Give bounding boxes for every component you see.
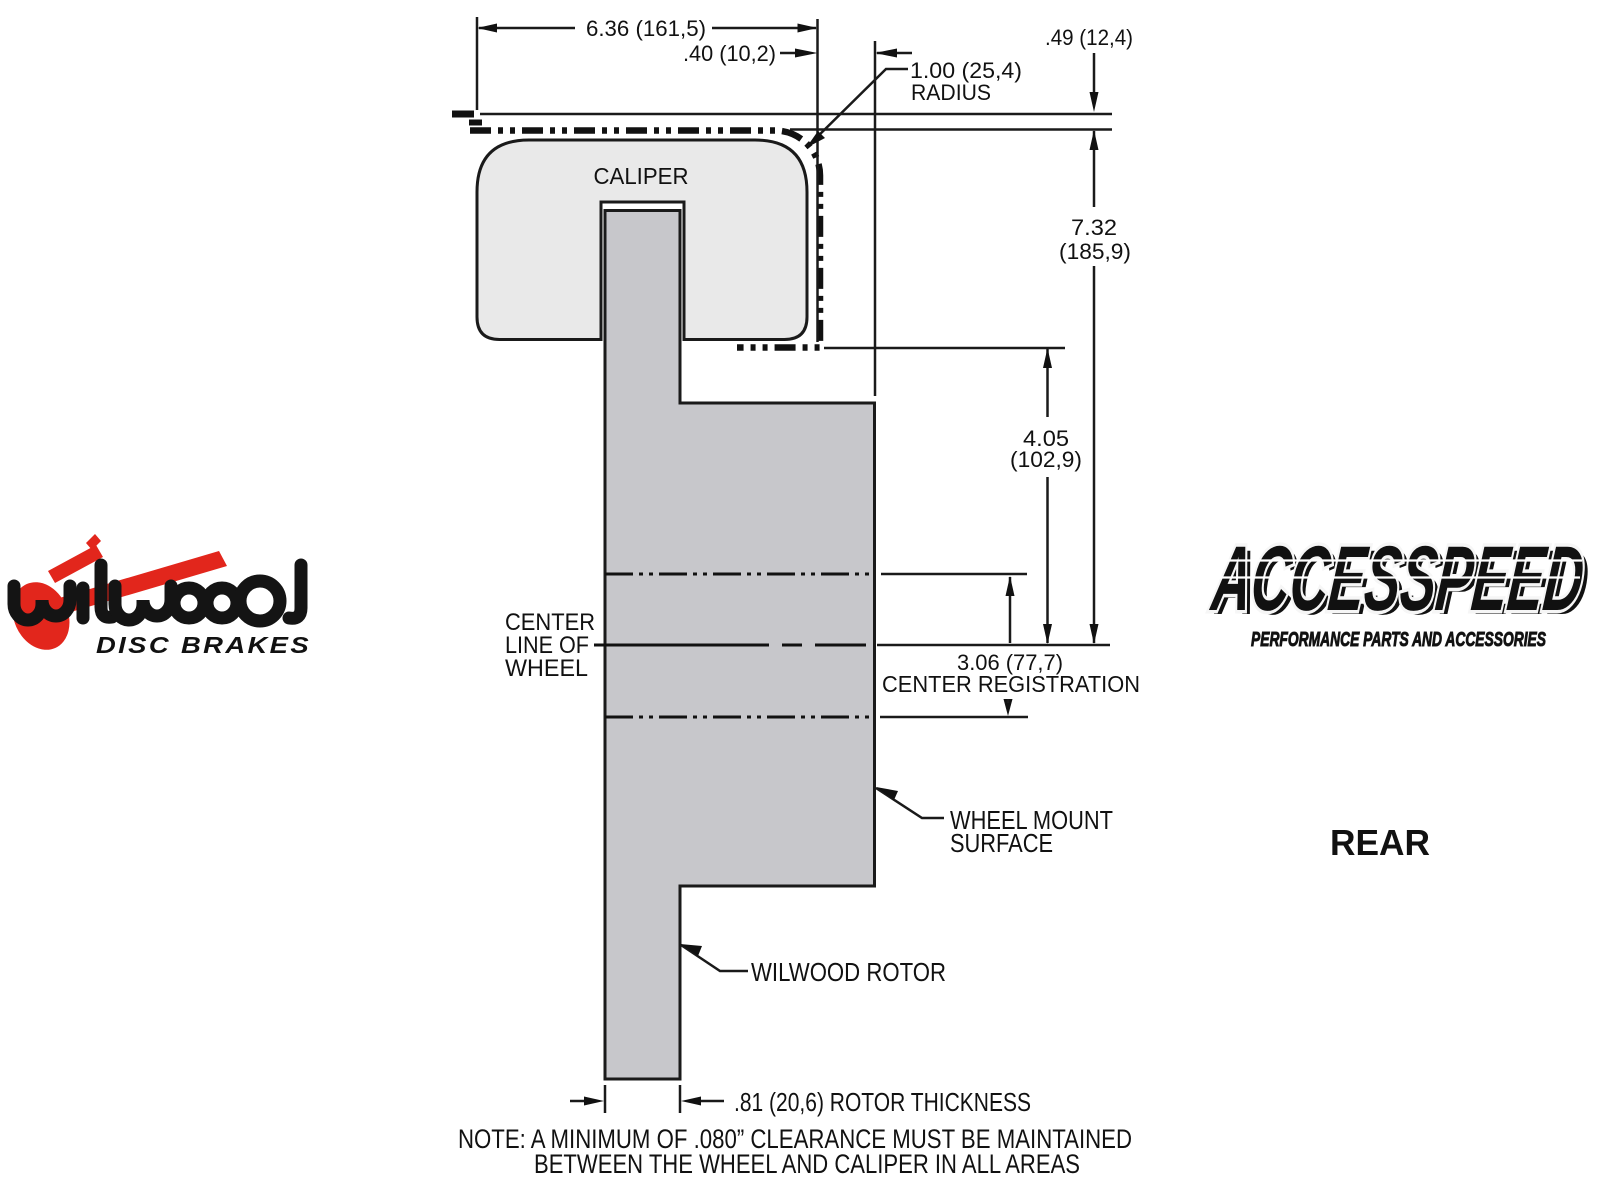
svg-text:WILWOOD ROTOR: WILWOOD ROTOR [751,957,946,987]
svg-text:CALIPER: CALIPER [594,163,689,189]
svg-text:6.36 (161,5): 6.36 (161,5) [586,16,706,41]
svg-text:7.32: 7.32 [1071,215,1117,240]
svg-text:.40 (10,2): .40 (10,2) [683,41,776,66]
svg-text:REAR: REAR [1330,822,1430,863]
svg-text:CENTER REGISTRATION: CENTER REGISTRATION [882,671,1140,697]
svg-text:SURFACE: SURFACE [950,828,1053,858]
svg-text:PERFORMANCE PARTS AND ACCESSOR: PERFORMANCE PARTS AND ACCESSORIES [1251,629,1546,651]
svg-text:(185,9): (185,9) [1059,239,1131,264]
svg-text:DISC BRAKES: DISC BRAKES [96,632,311,658]
svg-text:WHEEL: WHEEL [505,655,588,682]
svg-text:RADIUS: RADIUS [911,80,991,105]
svg-text:.49 (12,4): .49 (12,4) [1045,25,1133,50]
svg-text:BETWEEN THE WHEEL AND CALIPER: BETWEEN THE WHEEL AND CALIPER IN ALL ARE… [534,1149,1080,1179]
svg-text:.81 (20,6) ROTOR THICKNESS: .81 (20,6) ROTOR THICKNESS [734,1087,1031,1117]
svg-text:(102,9): (102,9) [1010,447,1082,472]
